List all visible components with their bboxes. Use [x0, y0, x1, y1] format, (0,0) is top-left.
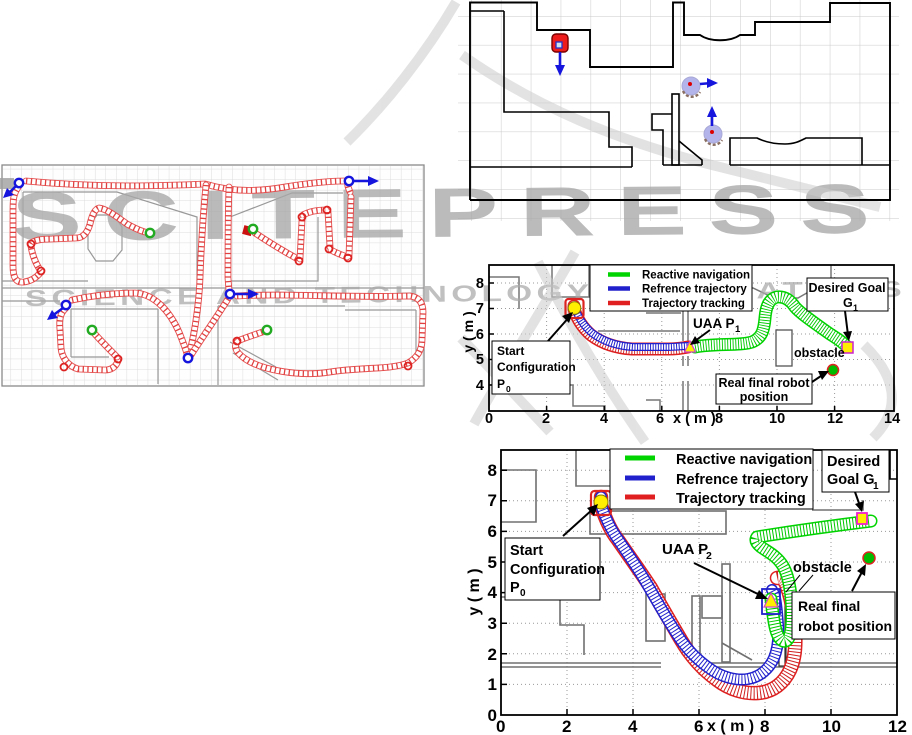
- svg-text:6: 6: [476, 327, 484, 343]
- svg-text:0: 0: [496, 717, 505, 735]
- svg-text:0: 0: [506, 384, 511, 394]
- svg-text:Desired Goal: Desired Goal: [808, 281, 885, 295]
- svg-text:4: 4: [476, 378, 484, 394]
- svg-text:2: 2: [562, 717, 571, 735]
- svg-text:4: 4: [600, 411, 608, 427]
- svg-text:12: 12: [827, 411, 843, 427]
- svg-text:Refrence trajectory: Refrence trajectory: [642, 284, 747, 296]
- svg-text:1: 1: [488, 675, 497, 694]
- svg-text:0: 0: [485, 411, 493, 427]
- svg-text:Reactive navigation: Reactive navigation: [642, 270, 750, 282]
- svg-text:6: 6: [694, 717, 703, 735]
- svg-text:6: 6: [488, 522, 497, 541]
- svg-text:4: 4: [628, 717, 638, 735]
- svg-text:P: P: [497, 377, 505, 391]
- svg-text:4: 4: [488, 583, 498, 602]
- svg-text:3: 3: [488, 614, 497, 633]
- svg-text:2: 2: [706, 550, 712, 562]
- svg-text:7: 7: [488, 491, 497, 510]
- svg-text:2: 2: [488, 645, 497, 664]
- svg-text:Start: Start: [497, 344, 524, 358]
- svg-text:Configuration: Configuration: [497, 360, 576, 374]
- svg-text:obstacle: obstacle: [794, 346, 845, 360]
- svg-text:14: 14: [884, 411, 900, 427]
- svg-text:UAA P: UAA P: [693, 316, 735, 331]
- svg-text:robot position: robot position: [798, 618, 892, 634]
- svg-text:8: 8: [715, 411, 723, 427]
- svg-text:Refrence trajectory: Refrence trajectory: [676, 472, 808, 488]
- svg-text:0: 0: [520, 588, 526, 599]
- svg-text:8: 8: [476, 276, 484, 292]
- svg-text:Reactive navigation: Reactive navigation: [676, 452, 812, 468]
- svg-text:y ( m ): y ( m ): [460, 311, 476, 352]
- svg-text:1: 1: [873, 481, 879, 492]
- svg-text:UAA P: UAA P: [662, 541, 708, 558]
- svg-text:Configuration: Configuration: [510, 562, 605, 578]
- svg-text:Real final: Real final: [798, 598, 860, 614]
- svg-text:2: 2: [542, 411, 550, 427]
- svg-text:0: 0: [488, 706, 497, 725]
- svg-text:10: 10: [822, 717, 841, 735]
- svg-text:Trajectory tracking: Trajectory tracking: [676, 491, 806, 507]
- svg-text:10: 10: [769, 411, 785, 427]
- svg-text:y ( m ): y ( m ): [466, 568, 483, 615]
- svg-text:5: 5: [488, 553, 497, 572]
- svg-text:G: G: [843, 296, 853, 310]
- svg-text:1: 1: [735, 324, 741, 335]
- svg-text:7: 7: [476, 301, 484, 317]
- svg-text:x ( m ): x ( m ): [673, 411, 716, 427]
- svg-text:Start: Start: [510, 543, 543, 559]
- svg-text:Real final robot: Real final robot: [719, 376, 811, 390]
- svg-text:8: 8: [488, 461, 497, 480]
- svg-text:12: 12: [888, 717, 907, 735]
- svg-text:1: 1: [853, 303, 858, 313]
- svg-text:5: 5: [476, 352, 484, 368]
- svg-text:obstacle: obstacle: [793, 560, 852, 576]
- svg-text:Trajectory tracking: Trajectory tracking: [642, 298, 745, 310]
- svg-text:P: P: [510, 580, 520, 596]
- svg-text:Goal G: Goal G: [827, 472, 875, 488]
- svg-text:position: position: [740, 390, 789, 404]
- svg-text:x ( m ): x ( m ): [707, 718, 754, 735]
- svg-text:8: 8: [760, 717, 769, 735]
- svg-text:Desired: Desired: [827, 454, 880, 470]
- svg-text:6: 6: [656, 411, 664, 427]
